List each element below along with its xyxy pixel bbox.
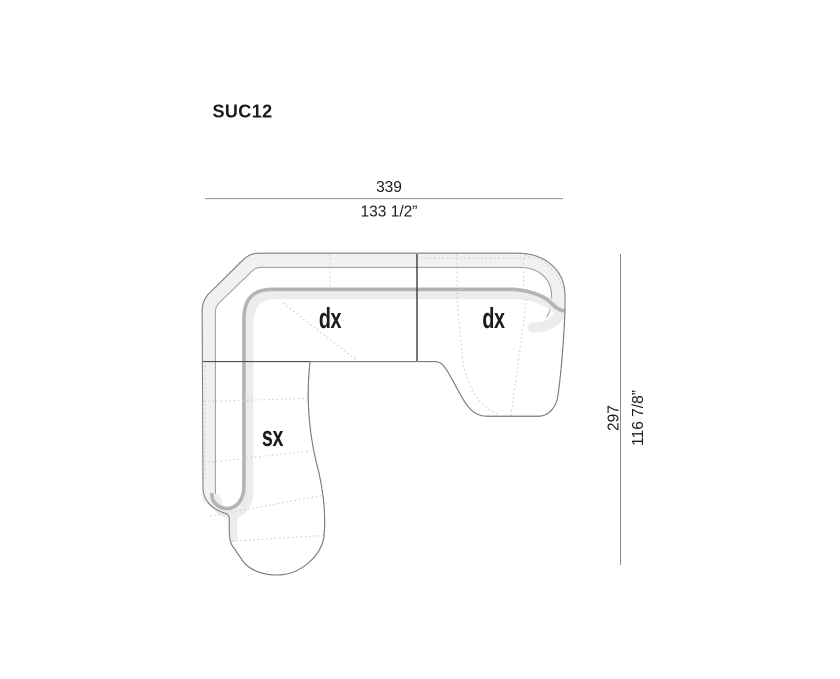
module-label-dx-left: dx [319, 303, 342, 335]
module-label-sx: sx [262, 421, 284, 453]
width-dimension-cm: 339 [376, 179, 402, 196]
depth-dimension-cm: 297 [606, 405, 623, 431]
hook-lower-shadow [233, 512, 234, 538]
depth-dimension-inches: 116 7/8” [630, 390, 647, 446]
sofa-shape [202, 253, 565, 575]
width-dimension-inches: 133 1/2” [361, 204, 418, 221]
technical-drawing-page: 339 133 1/2” 297 116 7/8” SUC12 dx dx sx [0, 0, 840, 679]
sofa-technical-drawing: 339 133 1/2” 297 116 7/8” SUC12 dx dx sx [0, 0, 840, 679]
product-code: SUC12 [213, 102, 273, 122]
module-label-dx-right: dx [482, 303, 505, 335]
